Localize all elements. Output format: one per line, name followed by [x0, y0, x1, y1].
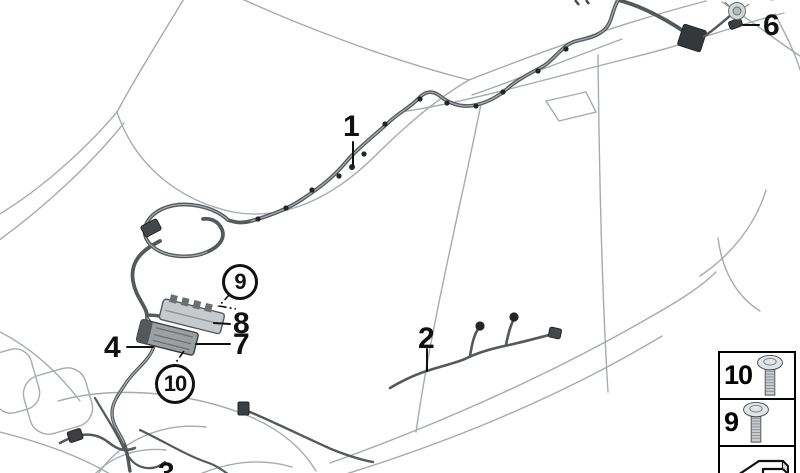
diagram-stage: 1 2 3 4 5 6 7 8 9 10 10 9	[0, 0, 800, 473]
door-harness	[390, 319, 553, 388]
fastener-legend: 10 9	[718, 351, 796, 473]
car-wiring-artwork	[0, 0, 800, 473]
dashdot-10	[174, 351, 184, 365]
screw-icon	[740, 401, 772, 445]
car-body-outline	[0, 0, 800, 473]
legend-row-arrow	[720, 447, 794, 473]
callout-1: 1	[343, 112, 359, 142]
callout-6: 6	[763, 11, 779, 41]
main-body-harness	[132, 0, 693, 318]
callout-2: 2	[418, 324, 434, 354]
sill-clip	[238, 402, 249, 415]
callout-8: 8	[233, 309, 249, 339]
screw-icon	[754, 354, 786, 398]
callout-10: 10	[155, 364, 195, 404]
callout-5-partial: 5	[764, 0, 780, 6]
leader-8	[214, 323, 230, 324]
callout-4: 4	[104, 333, 120, 363]
harness-fixing-dots	[255, 46, 568, 330]
callout-3-partial: 3	[158, 459, 174, 473]
legend-row-9: 9	[720, 400, 794, 447]
legend-label-9: 9	[724, 407, 738, 438]
legend-row-10: 10	[720, 353, 794, 400]
legend-label-10: 10	[724, 360, 752, 391]
direction-arrow-icon	[725, 455, 791, 473]
door-harness-clip	[548, 327, 562, 339]
callout-9: 9	[222, 264, 258, 300]
bumper-connector	[67, 428, 84, 443]
